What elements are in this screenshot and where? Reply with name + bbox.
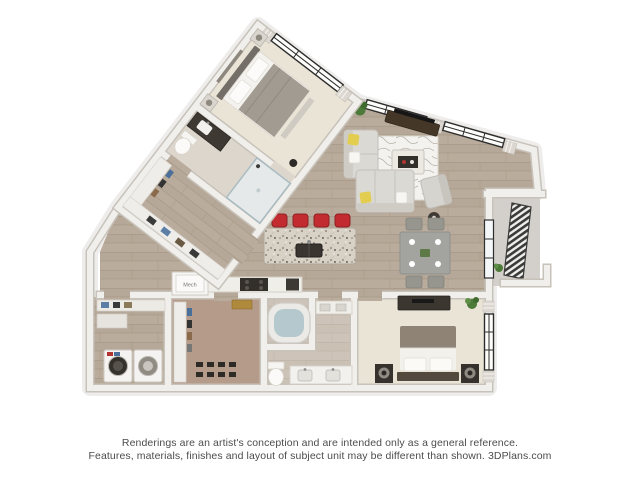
- place-setting: [409, 261, 415, 267]
- throw-pillow-white: [349, 152, 360, 163]
- bathtub: [268, 303, 310, 343]
- utility-cabinet: [97, 314, 127, 328]
- dryer: [134, 350, 162, 382]
- throw-pillow-yellow: [347, 133, 359, 145]
- toilet: [268, 362, 284, 386]
- pillow: [430, 358, 452, 371]
- dining-chair: [406, 276, 422, 288]
- place-setting: [435, 261, 441, 267]
- laundry-door-opening: [104, 289, 130, 301]
- bathroom2-door-opening: [318, 289, 342, 301]
- floor-plan-rendering: Mech: [0, 0, 640, 432]
- serving-tray: [398, 156, 418, 168]
- bed-2: [397, 326, 459, 381]
- double-vanity: [290, 366, 352, 384]
- washer: [104, 350, 132, 382]
- dining-chair: [428, 218, 444, 230]
- dining-chair: [428, 276, 444, 288]
- storage-boxes: [232, 300, 252, 309]
- bedroom2-door-opening: [358, 289, 382, 301]
- kitchen-appliance: [286, 279, 299, 291]
- nightstand: [461, 364, 479, 383]
- balcony-sliding-door: [485, 220, 494, 278]
- disclaimer-line-2: Features, materials, finishes and layout…: [0, 450, 640, 463]
- screenshot-canvas: Mech: [0, 0, 640, 480]
- island-faucet: [307, 240, 311, 244]
- pillow: [404, 358, 426, 371]
- disclaimer-line-1: Renderings are an artist's conception an…: [0, 437, 640, 450]
- disclaimer-caption: Renderings are an artist's conception an…: [0, 437, 640, 463]
- nightstand: [375, 364, 393, 383]
- range-cooktop: [240, 278, 268, 291]
- kitchen-island: [264, 228, 356, 264]
- closet-shelf-left: [174, 302, 186, 382]
- mech-label: Mech: [183, 283, 196, 289]
- duvet: [400, 326, 456, 349]
- place-setting: [409, 239, 415, 245]
- headboard: [397, 372, 459, 381]
- throw-pillow-white: [396, 192, 407, 203]
- place-setting: [435, 239, 441, 245]
- dining-chair: [406, 218, 422, 230]
- tub-water: [274, 309, 304, 337]
- throw-pillow-yellow: [359, 191, 371, 203]
- table-centerpiece: [420, 249, 430, 257]
- floor-plan-svg: Mech: [0, 0, 640, 432]
- linen-counter: [316, 301, 352, 314]
- balcony: [490, 196, 540, 286]
